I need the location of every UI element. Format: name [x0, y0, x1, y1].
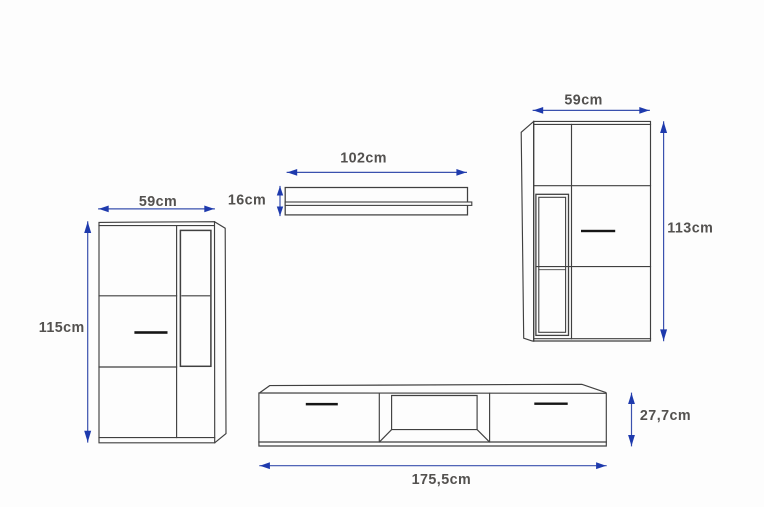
svg-text:102cm: 102cm	[340, 151, 387, 167]
svg-text:175,5cm: 175,5cm	[412, 472, 472, 488]
svg-text:113cm: 113cm	[667, 220, 713, 236]
svg-text:16cm: 16cm	[228, 192, 266, 208]
svg-text:59cm: 59cm	[139, 194, 177, 210]
svg-text:59cm: 59cm	[564, 93, 602, 109]
svg-text:115cm: 115cm	[39, 320, 85, 336]
svg-text:27,7cm: 27,7cm	[640, 408, 691, 424]
